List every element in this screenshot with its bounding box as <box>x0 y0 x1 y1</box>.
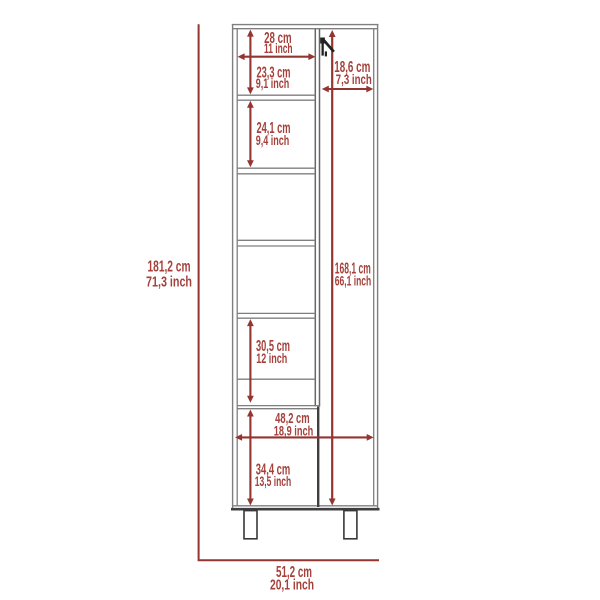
svg-text:12 inch: 12 inch <box>256 350 287 366</box>
svg-text:7,3 inch: 7,3 inch <box>336 71 372 87</box>
svg-text:20,1 inch: 20,1 inch <box>270 577 314 593</box>
svg-text:71,3 inch: 71,3 inch <box>146 275 192 291</box>
svg-text:9,4 inch: 9,4 inch <box>256 132 290 148</box>
svg-text:9,1 inch: 9,1 inch <box>256 75 290 91</box>
svg-text:181,2 cm: 181,2 cm <box>148 258 191 275</box>
svg-text:66,1 inch: 66,1 inch <box>335 273 372 289</box>
svg-text:18,9 inch: 18,9 inch <box>274 422 314 438</box>
svg-text:11 inch: 11 inch <box>264 40 293 56</box>
svg-text:13,5 inch: 13,5 inch <box>255 473 292 489</box>
